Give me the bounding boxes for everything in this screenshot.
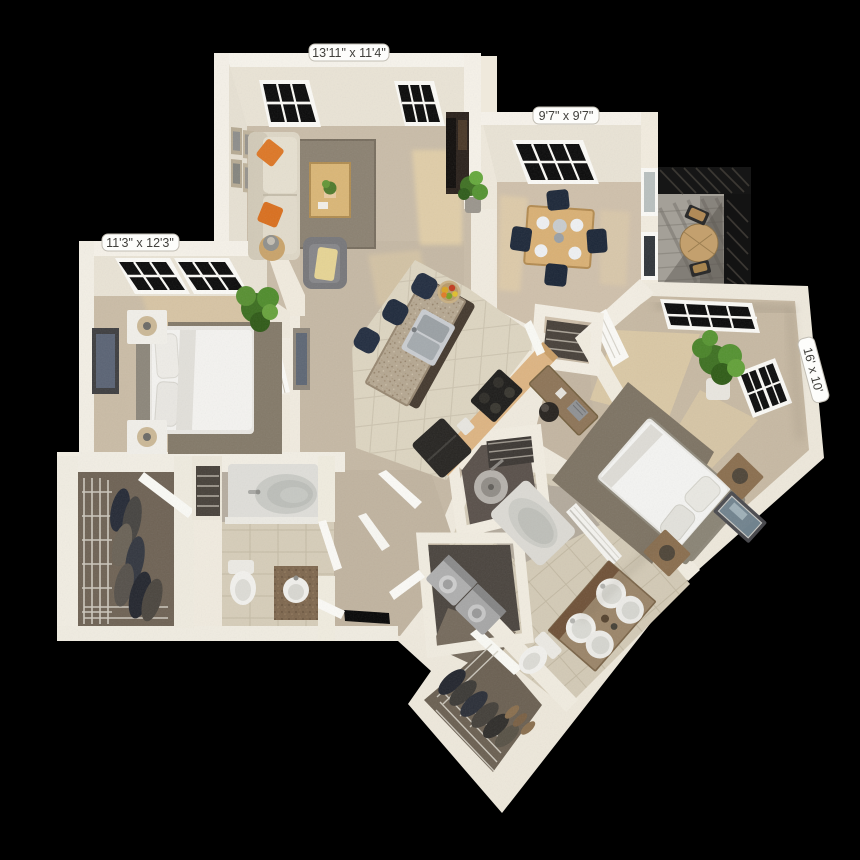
svg-text:13'11" x 11'4": 13'11" x 11'4" xyxy=(312,46,386,60)
svg-text:11'3" x 12'3": 11'3" x 12'3" xyxy=(106,236,174,250)
svg-text:9'7" x 9'7": 9'7" x 9'7" xyxy=(539,109,594,123)
